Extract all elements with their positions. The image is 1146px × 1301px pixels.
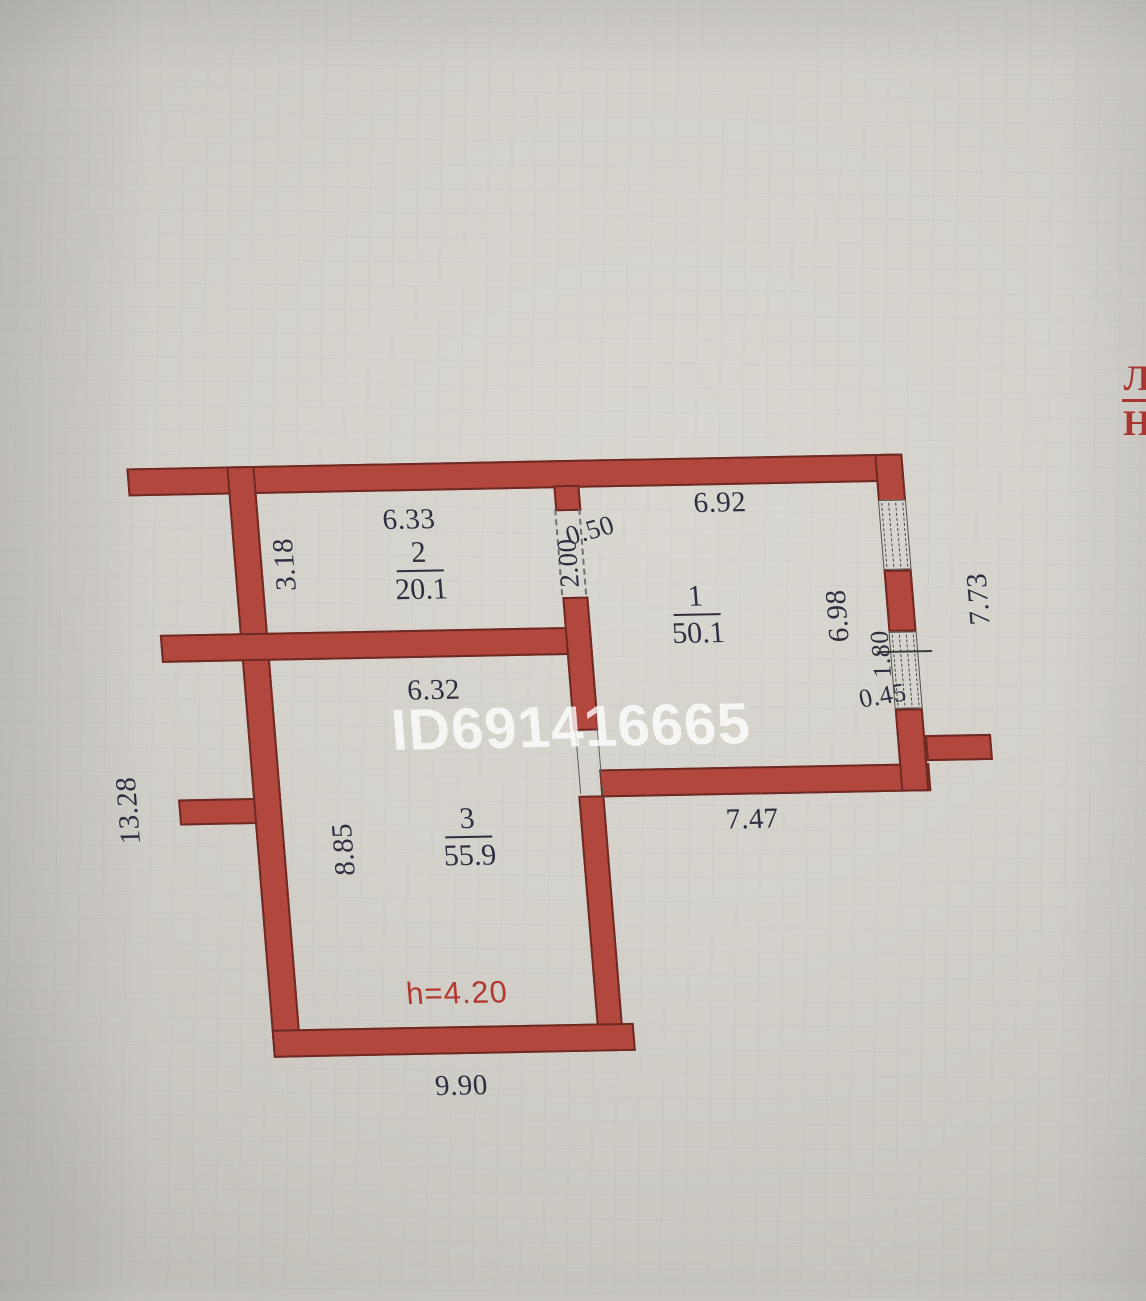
wall-room1-bottom bbox=[599, 763, 931, 797]
dim-right-outer: 7.73 bbox=[960, 572, 997, 625]
dim-room3-top: 6.32 bbox=[406, 674, 461, 708]
dim-window-width: 1.80 bbox=[864, 630, 898, 678]
photo-of-floor-plan: { "plan": { "watermark": "ID691416665", … bbox=[0, 0, 1146, 1280]
wall-room3-right bbox=[578, 795, 622, 1025]
room-label-3: 3 55.9 bbox=[439, 803, 497, 872]
dim-room1-right-inner: 6.98 bbox=[820, 589, 857, 642]
room-area: 50.1 bbox=[671, 615, 726, 649]
room-number: 2 bbox=[394, 536, 444, 571]
wall-stub-left-lower bbox=[178, 798, 257, 825]
dim-room2-top: 6.33 bbox=[381, 503, 436, 537]
dim-room1-bottom: 7.47 bbox=[725, 803, 780, 837]
floor-plan: ID691416665 6.33 3.18 0.50 2.00 6.92 6.9… bbox=[126, 447, 1025, 1142]
dim-room2-left: 3.18 bbox=[267, 538, 304, 591]
window-pane-line bbox=[906, 635, 913, 706]
window-pane-line bbox=[895, 503, 901, 567]
wall-right-top bbox=[874, 454, 906, 502]
corner-mark-fraction: Л Н bbox=[1114, 360, 1146, 441]
dim-room1-top: 6.92 bbox=[692, 486, 747, 520]
wall-stub-right bbox=[925, 734, 993, 761]
room-label-2: 2 20.1 bbox=[391, 536, 449, 605]
wall-middle-upper-stub bbox=[553, 485, 581, 511]
window-pane-line bbox=[881, 503, 887, 567]
window-pane-line bbox=[913, 634, 920, 705]
window-upper bbox=[878, 500, 912, 570]
wall-divider-room2-room3 bbox=[160, 627, 593, 663]
room-area: 55.9 bbox=[442, 837, 497, 871]
dim-room3-bottom: 9.90 bbox=[434, 1069, 489, 1103]
dim-left-outer: 13.28 bbox=[110, 776, 148, 844]
room-area: 20.1 bbox=[394, 571, 449, 605]
wall-right-pier bbox=[884, 569, 917, 631]
dim-room3-left: 8.85 bbox=[326, 823, 363, 876]
corner-mark-bottom-letter: Н bbox=[1114, 405, 1146, 441]
room-number: 1 bbox=[671, 580, 721, 615]
dim-door-opening: 2.00 bbox=[551, 538, 586, 588]
ceiling-height-note: h=4.20 bbox=[405, 974, 510, 1012]
wall-right-bottom bbox=[895, 708, 930, 791]
room-label-1: 1 50.1 bbox=[668, 580, 726, 649]
window-pane-line bbox=[888, 503, 894, 567]
room-number: 3 bbox=[442, 803, 492, 838]
corner-mark-top-letter: Л bbox=[1114, 360, 1146, 396]
corner-mark-fraction-bar bbox=[1122, 399, 1146, 402]
window-pane-line bbox=[902, 503, 908, 567]
wall-room3-bottom bbox=[272, 1023, 636, 1058]
